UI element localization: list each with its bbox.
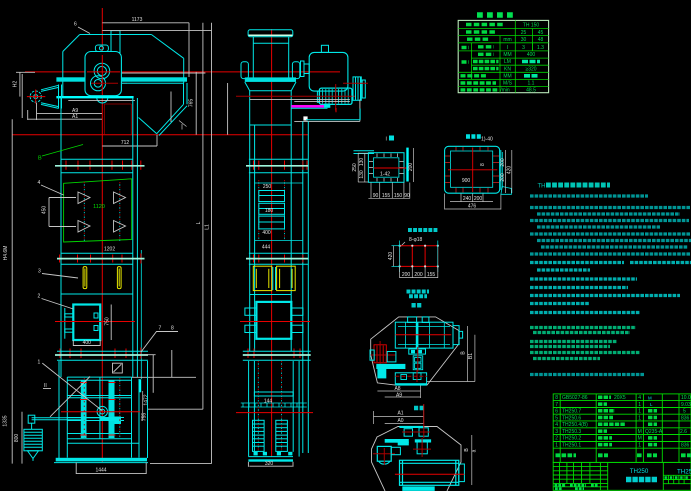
svg-text:1: 1 bbox=[638, 409, 641, 415]
svg-text:45: 45 bbox=[538, 30, 544, 36]
svg-text:TH250.1: TH250.1 bbox=[562, 442, 581, 448]
svg-text:130: 130 bbox=[359, 158, 365, 167]
svg-text:3: 3 bbox=[555, 429, 558, 435]
svg-text:90: 90 bbox=[404, 193, 410, 199]
svg-text:A0: A0 bbox=[397, 418, 403, 424]
svg-text:2: 2 bbox=[555, 436, 558, 442]
svg-text:1472: 1472 bbox=[144, 394, 150, 405]
svg-text:420: 420 bbox=[388, 252, 394, 261]
svg-text:a: a bbox=[472, 449, 478, 452]
svg-text:48: 48 bbox=[538, 37, 544, 43]
svg-text:M: M bbox=[648, 395, 652, 400]
svg-text:M: M bbox=[638, 436, 642, 442]
svg-text:H2: H2 bbox=[13, 81, 19, 88]
svg-text:L: L bbox=[196, 221, 202, 224]
svg-text:155: 155 bbox=[382, 193, 391, 199]
svg-text:A1: A1 bbox=[72, 114, 78, 120]
svg-text:200: 200 bbox=[414, 272, 423, 278]
svg-text:1.1: 1.1 bbox=[528, 81, 535, 87]
svg-text:7: 7 bbox=[555, 402, 558, 408]
svg-text:150: 150 bbox=[394, 193, 403, 199]
svg-text:/min: /min bbox=[500, 88, 510, 94]
svg-text:476: 476 bbox=[468, 204, 477, 210]
svg-text:4: 4 bbox=[38, 180, 41, 186]
svg-text:1335: 1335 bbox=[3, 415, 9, 426]
svg-text:200: 200 bbox=[408, 163, 414, 172]
svg-text:6: 6 bbox=[555, 409, 558, 415]
svg-text:4: 4 bbox=[555, 422, 558, 428]
svg-text:20X5: 20X5 bbox=[614, 395, 626, 401]
svg-text:444: 444 bbox=[262, 245, 271, 251]
svg-text:MM: MM bbox=[503, 73, 511, 79]
svg-text:155: 155 bbox=[427, 272, 436, 278]
svg-text:A8: A8 bbox=[394, 386, 400, 392]
svg-text:TH250.3: TH250.3 bbox=[562, 429, 581, 435]
svg-text:1444: 1444 bbox=[95, 468, 106, 474]
svg-text:320: 320 bbox=[265, 461, 274, 467]
svg-text:48.5: 48.5 bbox=[526, 88, 536, 94]
svg-text:765: 765 bbox=[189, 99, 195, 108]
svg-text:450: 450 bbox=[42, 206, 48, 215]
svg-text:10.0: 10.0 bbox=[681, 395, 691, 401]
svg-text:TH250.2: TH250.2 bbox=[562, 436, 581, 442]
svg-text:1202: 1202 bbox=[104, 247, 115, 253]
svg-text:7: 7 bbox=[159, 326, 162, 332]
svg-text:90: 90 bbox=[373, 193, 379, 199]
svg-text:420: 420 bbox=[507, 166, 513, 175]
svg-text:KN: KN bbox=[504, 66, 511, 72]
svg-text:800: 800 bbox=[14, 434, 20, 443]
svg-text:250: 250 bbox=[263, 184, 272, 190]
svg-text:400: 400 bbox=[83, 340, 92, 346]
svg-text:TH: TH bbox=[538, 184, 546, 190]
svg-text:1)-40: 1)-40 bbox=[481, 137, 493, 143]
svg-text:TH250.6: TH250.6 bbox=[562, 415, 581, 421]
svg-text:2.6: 2.6 bbox=[680, 429, 687, 435]
svg-text:400: 400 bbox=[262, 230, 271, 236]
svg-text:5: 5 bbox=[555, 415, 558, 421]
svg-text:B: B bbox=[38, 156, 42, 162]
svg-text:Q235-A: Q235-A bbox=[645, 429, 663, 435]
svg-text:1173: 1173 bbox=[132, 17, 143, 23]
svg-text:4: 4 bbox=[638, 395, 641, 401]
svg-text:LM: LM bbox=[504, 59, 511, 65]
svg-text:TH25: TH25 bbox=[677, 469, 691, 476]
svg-text:TH250.4(B): TH250.4(B) bbox=[562, 422, 588, 428]
svg-text:712: 712 bbox=[121, 140, 130, 146]
svg-text:400: 400 bbox=[527, 52, 536, 58]
svg-text:B1: B1 bbox=[468, 353, 474, 359]
svg-text:GB5027-86: GB5027-86 bbox=[562, 395, 588, 401]
svg-text:L1: L1 bbox=[205, 224, 211, 230]
svg-text:8: 8 bbox=[555, 395, 558, 401]
svg-text:9.03: 9.03 bbox=[681, 402, 691, 408]
svg-text:8: 8 bbox=[480, 163, 486, 166]
svg-text:M: M bbox=[638, 429, 642, 435]
svg-text:1: 1 bbox=[638, 415, 641, 421]
svg-text:5: 5 bbox=[683, 409, 686, 415]
svg-text:A1: A1 bbox=[397, 411, 403, 417]
svg-text:I: I bbox=[386, 137, 387, 143]
svg-text:144: 144 bbox=[264, 399, 273, 405]
svg-text:180: 180 bbox=[265, 208, 274, 214]
svg-text:8-φ18: 8-φ18 bbox=[409, 237, 422, 243]
svg-text:1: 1 bbox=[638, 442, 641, 448]
svg-text:2: 2 bbox=[38, 294, 41, 300]
svg-text:1.3: 1.3 bbox=[537, 45, 544, 51]
svg-text:MM: MM bbox=[503, 52, 511, 58]
svg-text:1: 1 bbox=[555, 442, 558, 448]
svg-text:3: 3 bbox=[522, 45, 525, 51]
svg-text:900: 900 bbox=[462, 178, 471, 184]
svg-text:200: 200 bbox=[500, 173, 506, 182]
svg-text:130: 130 bbox=[359, 170, 365, 179]
svg-text:≥320: ≥320 bbox=[525, 66, 536, 72]
svg-text:3: 3 bbox=[38, 269, 41, 275]
svg-text:200: 200 bbox=[474, 196, 483, 202]
svg-text:6: 6 bbox=[74, 22, 77, 28]
svg-text:30: 30 bbox=[521, 37, 527, 43]
svg-text:M/S: M/S bbox=[503, 81, 513, 87]
svg-text:240: 240 bbox=[463, 196, 472, 202]
svg-text:I: I bbox=[507, 45, 508, 51]
svg-text:750: 750 bbox=[105, 317, 111, 326]
svg-text:200: 200 bbox=[402, 272, 411, 278]
svg-text:1: 1 bbox=[38, 360, 41, 366]
svg-text:TH250.7: TH250.7 bbox=[562, 409, 581, 415]
svg-text:mm: mm bbox=[503, 37, 511, 43]
svg-text:1120: 1120 bbox=[93, 204, 105, 210]
svg-text:250: 250 bbox=[352, 163, 358, 172]
svg-text:1-42: 1-42 bbox=[380, 172, 390, 178]
svg-text:836: 836 bbox=[681, 442, 690, 448]
svg-text:1: 1 bbox=[638, 402, 641, 408]
svg-text:H4.6M: H4.6M bbox=[3, 246, 9, 261]
svg-text:836: 836 bbox=[681, 415, 690, 421]
svg-text:A9: A9 bbox=[396, 392, 402, 398]
svg-text:25: 25 bbox=[521, 30, 527, 36]
svg-text:TH 150: TH 150 bbox=[523, 23, 540, 29]
svg-text:8: 8 bbox=[171, 326, 174, 332]
svg-text:200: 200 bbox=[500, 158, 506, 167]
svg-text:755: 755 bbox=[142, 413, 148, 422]
svg-text:TH250: TH250 bbox=[630, 468, 649, 475]
